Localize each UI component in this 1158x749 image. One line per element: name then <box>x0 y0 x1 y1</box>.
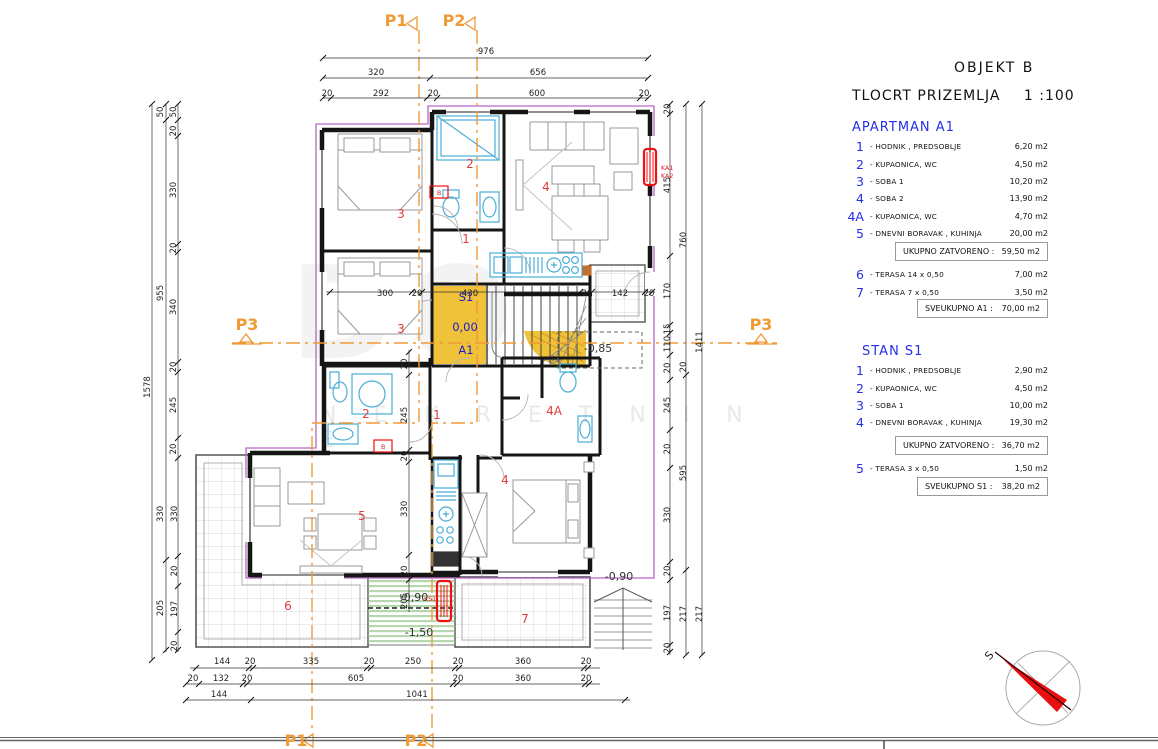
s1-subtotal-value: 36,70 m2 <box>1002 441 1040 450</box>
a1-subtotal-value: 59,50 m2 <box>1002 247 1040 256</box>
dim-text: 656 <box>530 68 546 78</box>
dim-text: 330 <box>169 182 179 198</box>
dim-text: 360 <box>515 674 531 684</box>
equip-text: KA2 <box>661 173 673 180</box>
legend-row: 2- KUPAONICA, WC4,50 m2 <box>842 155 1048 172</box>
dim-text: 20 <box>663 363 673 374</box>
dim-text: 330 <box>156 506 166 522</box>
room-label: - TERASA 14 x 0,50 <box>870 270 998 279</box>
level-text: -0,85 <box>584 342 612 355</box>
room-label: - SOBA 2 <box>870 194 998 203</box>
legend-row: 5- TERASA 3 x 0,501,50 m2 <box>842 460 1048 477</box>
dim-text: 20 <box>170 566 180 577</box>
legend-row: 5- DNEVNI BORAVAK , KUHINJA20,00 m2 <box>842 225 1048 242</box>
dim-text: 144 <box>214 657 230 667</box>
object-title: OBJEKT B <box>954 60 1034 76</box>
room-label-4: 4 <box>542 180 550 194</box>
apartman-a1-header: APARTMAN A1 <box>852 120 955 135</box>
dim-text: 142 <box>612 289 628 299</box>
dim-text: 50 <box>169 107 179 118</box>
room-label: - KUPAONICA, WC <box>870 160 998 169</box>
dim-text: 20 <box>245 657 256 667</box>
equip-text: KS1 <box>424 596 436 603</box>
room-number: 1 <box>842 139 864 154</box>
title-block-border <box>0 738 1158 749</box>
dim-text: 250 <box>405 657 421 667</box>
compass-north-label: S <box>982 649 996 663</box>
legend-row: 1- HODNIK , PREDSOBLJE2,90 m2 <box>842 362 1048 379</box>
terrace-6 <box>196 455 368 647</box>
dim-text: 20 <box>453 674 464 684</box>
dim-text: 217 <box>679 606 689 622</box>
section-text: P1 <box>285 731 308 749</box>
a1-total-label: SVEUKUPNO A1 : <box>925 304 993 313</box>
dim-text: 20 <box>663 104 673 115</box>
dim-text: 20 <box>644 289 655 299</box>
drawing-title-text: TLOCRT PRIZEMLJA <box>852 88 1000 104</box>
dim-text: 20 <box>581 674 592 684</box>
dim-text: 1411 <box>695 331 705 353</box>
dim-text: 20 <box>663 643 673 654</box>
a1-subtotal-box: UKUPNO ZATVORENO : 59,50 m2 <box>895 242 1048 261</box>
bathroom-4a <box>560 364 592 442</box>
level-text: -0,90 <box>605 570 633 583</box>
section-marker-p2-top <box>465 17 475 30</box>
compass-rose: S <box>982 649 1080 725</box>
equip-text: KA1 <box>661 165 673 172</box>
apartman-a1-terrace-rows: 6- TERASA 14 x 0,507,00 m27- TERASA 7 x … <box>842 266 1048 301</box>
room-label: - SOBA 1 <box>870 177 998 186</box>
dim-text: 1041 <box>406 690 428 700</box>
room-label-3: 3 <box>397 207 405 221</box>
room-area: 10,00 m2 <box>998 401 1048 410</box>
room-area: 1,50 m2 <box>998 464 1048 473</box>
dim-text: 20 <box>169 126 179 137</box>
room-number: 1 <box>842 363 864 378</box>
dim-text: 20 <box>242 674 253 684</box>
room-label-4: 4 <box>501 473 509 487</box>
legend-panel: OBJEKT B TLOCRT PRIZEMLJA 1 :100 APARTMA… <box>842 56 1054 516</box>
dim-text: 20 <box>453 657 464 667</box>
dim-text: 20 <box>428 89 439 99</box>
level-text: -1,50 <box>405 626 433 639</box>
dim-text: 340 <box>169 299 179 315</box>
room-number: 6 <box>842 267 864 282</box>
stan-s1-rows: 1- HODNIK , PREDSOBLJE2,90 m22- KUPAONIC… <box>842 362 1048 432</box>
dim-text: 976 <box>478 47 494 57</box>
room-area: 19,30 m2 <box>998 418 1048 427</box>
s1-subtotal-label: UKUPNO ZATVORENO : <box>903 441 994 450</box>
dim-text: 300 <box>377 289 393 299</box>
bed-upper <box>338 134 422 210</box>
room-label-1: 1 <box>433 408 441 422</box>
room-label-1: 1 <box>462 232 470 246</box>
s1-total-box: SVEUKUPNO S1 : 38,20 m2 <box>917 477 1048 496</box>
dim-text: 600 <box>529 89 545 99</box>
unit-text: A1 <box>458 343 473 357</box>
drawing-scale: 1 :100 <box>1024 88 1075 104</box>
dim-text: 1578 <box>143 376 153 398</box>
s1-total-value: 38,20 m2 <box>1002 482 1040 491</box>
radiators <box>374 149 656 621</box>
dim-text: 330 <box>663 507 673 523</box>
room-label-3: 3 <box>397 322 405 336</box>
dim-text: 20 <box>170 641 180 652</box>
section-text: P1 <box>385 11 408 30</box>
room-area: 13,90 m2 <box>998 194 1048 203</box>
room-label: - KUPAONICA, WC <box>870 212 998 221</box>
dim-text: 20 <box>400 451 410 462</box>
room-number: 7 <box>842 285 864 300</box>
dim-text: 20 <box>581 657 592 667</box>
s1-total-label: SVEUKUPNO S1 : <box>925 482 992 491</box>
dim-text: 20 <box>412 289 423 299</box>
section-text: P3 <box>236 315 259 334</box>
drawing-title: TLOCRT PRIZEMLJA 1 :100 <box>852 88 1075 104</box>
room-label-7: 7 <box>521 612 529 626</box>
s1-subtotal-box: UKUPNO ZATVORENO : 36,70 m2 <box>895 436 1048 455</box>
room-label-5: 5 <box>358 509 366 523</box>
a1-subtotal-label: UKUPNO ZATVORENO : <box>903 247 994 256</box>
room-label: - TERASA 7 x 0,50 <box>870 288 998 297</box>
room-label-4A: 4A <box>546 404 563 418</box>
section-marker-p1-top <box>407 17 417 30</box>
equip-text: B <box>437 190 441 197</box>
kitchen-a1 <box>434 460 458 566</box>
legend-row: 2- KUPAONICA, WC4,50 m2 <box>842 379 1048 396</box>
dim-text: 245 <box>169 397 179 413</box>
room-label-2: 2 <box>466 157 474 171</box>
equip-text: B <box>381 444 385 451</box>
section-marker-p3-left <box>240 334 252 342</box>
dim-text: 20 <box>188 674 199 684</box>
room-area: 20,00 m2 <box>998 229 1048 238</box>
dim-text: 197 <box>170 601 180 617</box>
dim-text: 955 <box>156 285 166 301</box>
dim-text: 292 <box>373 89 389 99</box>
a1-total-box: SVEUKUPNO A1 : 70,00 m2 <box>917 299 1048 318</box>
room-number: 3 <box>842 398 864 413</box>
dim-text: 170 <box>663 283 673 299</box>
dim-text: 217 <box>695 606 705 622</box>
room-number: 5 <box>842 226 864 241</box>
a1-total-value: 70,00 m2 <box>1002 304 1040 313</box>
room-area: 4,50 m2 <box>998 160 1048 169</box>
dim-text: 605 <box>348 674 364 684</box>
room-area: 3,50 m2 <box>998 288 1048 297</box>
room-number: 4A <box>842 209 864 224</box>
room-label-2: 2 <box>362 407 370 421</box>
room-area: 4,70 m2 <box>998 212 1048 221</box>
dim-text: 330 <box>170 506 180 522</box>
stan-s1-header: STAN S1 <box>862 344 923 359</box>
room-area: 10,20 m2 <box>998 177 1048 186</box>
dim-text: 20 <box>400 359 410 370</box>
unit-text: S1 <box>459 290 474 304</box>
dim-text: 20 <box>663 444 673 455</box>
legend-row: 3- SOBA 110,00 m2 <box>842 397 1048 414</box>
room-label: - TERASA 3 x 0,50 <box>870 464 998 473</box>
room-label: - SOBA 1 <box>870 401 998 410</box>
dim-text: 20 <box>639 89 650 99</box>
dim-text: 205 <box>156 600 166 616</box>
dim-text: 15 <box>663 324 673 335</box>
floor-plan-sheet: DO N E K R E T N I N E <box>0 0 1158 749</box>
room-number: 3 <box>842 174 864 189</box>
dim-text: 132 <box>213 674 229 684</box>
dim-text: 330 <box>400 501 410 517</box>
dim-text: 20 <box>169 444 179 455</box>
room-area: 4,50 m2 <box>998 384 1048 393</box>
dim-text: 20 <box>582 289 593 299</box>
dim-text: 20 <box>400 566 410 577</box>
dim-text: 595 <box>679 465 689 481</box>
room-number: 2 <box>842 157 864 172</box>
room-number: 4 <box>842 415 864 430</box>
dim-text: 20 <box>663 566 673 577</box>
legend-row: 4- SOBA 213,90 m2 <box>842 190 1048 207</box>
sofa-a1 <box>254 468 324 526</box>
legend-row: 4- DNEVNI BORAVAK , KUHINJA19,30 m2 <box>842 414 1048 431</box>
external-stair <box>594 588 652 650</box>
dim-text: 320 <box>368 68 384 78</box>
dim-text: 335 <box>303 657 319 667</box>
dim-text: 245 <box>663 397 673 413</box>
room-label: - DNEVNI BORAVAK , KUHINJA <box>870 229 998 238</box>
dim-text: 20 <box>322 89 333 99</box>
legend-row: 4A- KUPAONICA, WC4,70 m2 <box>842 208 1048 225</box>
dim-text: 20 <box>679 362 689 373</box>
dim-text: 110 <box>663 336 673 352</box>
room-area: 2,90 m2 <box>998 366 1048 375</box>
room-number: 4 <box>842 191 864 206</box>
legend-row: 6- TERASA 14 x 0,507,00 m2 <box>842 266 1048 283</box>
dim-text: 197 <box>663 605 673 621</box>
room-number: 2 <box>842 381 864 396</box>
room-label: - DNEVNI BORAVAK , KUHINJA <box>870 418 998 427</box>
room-label: - HODNIK , PREDSOBLJE <box>870 366 998 375</box>
legend-row: 1- HODNIK , PREDSOBLJE6,20 m2 <box>842 138 1048 155</box>
section-text: P2 <box>405 731 428 749</box>
compass-needle <box>1003 659 1067 712</box>
dim-text: 20 <box>169 362 179 373</box>
legend-row: 3- SOBA 110,20 m2 <box>842 173 1048 190</box>
bathroom-a1 <box>328 372 392 444</box>
dim-text: 760 <box>679 232 689 248</box>
room-label: - HODNIK , PREDSOBLJE <box>870 142 998 151</box>
room-number: 5 <box>842 461 864 476</box>
dim-text: 20 <box>364 657 375 667</box>
dining-s1 <box>552 184 608 252</box>
dim-text: 360 <box>515 657 531 667</box>
stan-s1-terrace-rows: 5- TERASA 3 x 0,501,50 m2 <box>842 460 1048 477</box>
section-text: P3 <box>750 315 773 334</box>
apartman-a1-rows: 1- HODNIK , PREDSOBLJE6,20 m22- KUPAONIC… <box>842 138 1048 242</box>
dim-text: 50 <box>156 107 166 118</box>
room-area: 7,00 m2 <box>998 270 1048 279</box>
unit-text: 0,00 <box>452 320 478 334</box>
section-marker-p3-right <box>755 334 767 342</box>
bed-a1 <box>462 462 594 558</box>
room-area: 6,20 m2 <box>998 142 1048 151</box>
room-label: - KUPAONICA, WC <box>870 384 998 393</box>
dim-text: 20 <box>169 243 179 254</box>
dim-text: 144 <box>211 690 227 700</box>
section-text: P2 <box>443 11 466 30</box>
room-label-6: 6 <box>284 599 292 613</box>
kitchen-knob <box>583 266 591 275</box>
dim-text: 245 <box>400 407 410 423</box>
